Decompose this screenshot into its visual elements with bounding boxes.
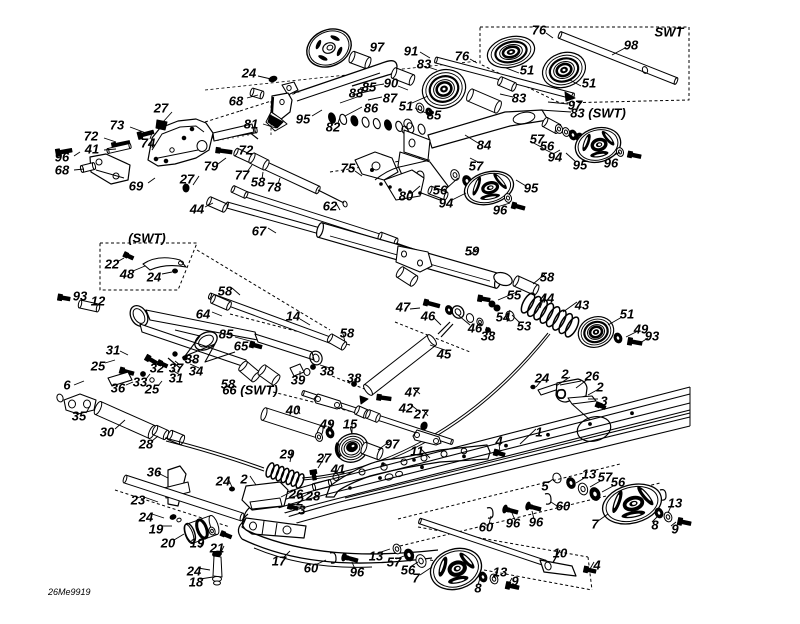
svg-text:83 (SWT): 83 (SWT) [570, 106, 626, 121]
svg-text:62: 62 [323, 199, 338, 214]
svg-text:45: 45 [436, 347, 452, 362]
svg-text:58: 58 [540, 270, 555, 285]
svg-text:8: 8 [474, 581, 482, 596]
svg-text:85: 85 [427, 108, 442, 123]
svg-text:29: 29 [279, 447, 295, 462]
svg-text:35: 35 [72, 409, 87, 424]
svg-text:51: 51 [582, 76, 596, 91]
svg-text:76: 76 [455, 49, 470, 64]
svg-text:83: 83 [417, 57, 432, 72]
svg-text:87: 87 [383, 91, 398, 106]
svg-text:25: 25 [144, 382, 160, 397]
svg-text:24: 24 [215, 474, 231, 489]
svg-text:1: 1 [535, 425, 542, 440]
svg-text:78: 78 [267, 180, 282, 195]
svg-text:80: 80 [399, 189, 414, 204]
svg-text:54: 54 [496, 310, 511, 325]
svg-text:27: 27 [413, 407, 429, 422]
svg-text:51: 51 [520, 63, 534, 78]
svg-text:95: 95 [573, 158, 588, 173]
svg-text:27: 27 [153, 101, 169, 116]
svg-text:36: 36 [147, 465, 162, 480]
svg-text:77: 77 [235, 168, 250, 183]
svg-text:72: 72 [239, 143, 254, 158]
svg-text:14: 14 [286, 309, 301, 324]
svg-text:46: 46 [420, 309, 436, 324]
svg-text:96: 96 [506, 516, 521, 531]
svg-text:48: 48 [119, 267, 135, 282]
svg-text:93: 93 [645, 329, 660, 344]
svg-text:7: 7 [591, 517, 599, 532]
svg-text:47: 47 [395, 300, 411, 315]
svg-text:67: 67 [252, 224, 267, 239]
svg-text:51: 51 [620, 307, 634, 322]
svg-text:96: 96 [350, 565, 365, 580]
svg-text:93: 93 [73, 289, 88, 304]
svg-text:17: 17 [272, 554, 287, 569]
svg-text:49: 49 [319, 417, 335, 432]
svg-text:SWT: SWT [655, 25, 685, 40]
svg-text:95: 95 [296, 112, 311, 127]
svg-text:39: 39 [291, 373, 306, 388]
svg-text:11: 11 [410, 444, 424, 459]
svg-text:44: 44 [539, 291, 555, 306]
svg-text:85: 85 [219, 327, 234, 342]
svg-text:65: 65 [234, 339, 249, 354]
svg-text:43: 43 [574, 298, 590, 313]
svg-text:41: 41 [84, 142, 99, 157]
svg-text:(SWT): (SWT) [128, 231, 166, 246]
svg-text:98: 98 [624, 38, 639, 53]
svg-text:57: 57 [387, 555, 402, 570]
svg-text:23: 23 [130, 493, 146, 508]
svg-text:30: 30 [100, 425, 115, 440]
svg-text:57: 57 [469, 159, 484, 174]
svg-text:41: 41 [330, 462, 345, 477]
svg-text:38: 38 [347, 371, 362, 386]
svg-text:18: 18 [189, 575, 204, 590]
svg-text:59: 59 [465, 244, 480, 259]
svg-text:60: 60 [556, 499, 571, 514]
svg-text:58: 58 [251, 175, 266, 190]
svg-text:58: 58 [340, 326, 355, 341]
svg-text:2: 2 [560, 367, 569, 382]
svg-text:74: 74 [141, 136, 156, 151]
svg-text:10: 10 [553, 546, 568, 561]
svg-text:31: 31 [169, 371, 183, 386]
svg-text:31: 31 [106, 343, 120, 358]
svg-text:75: 75 [341, 161, 356, 176]
svg-text:69: 69 [129, 179, 144, 194]
svg-text:24: 24 [241, 66, 257, 81]
svg-text:15: 15 [343, 417, 358, 432]
svg-text:76: 76 [532, 23, 547, 38]
svg-text:73: 73 [110, 118, 125, 133]
svg-text:96: 96 [604, 156, 619, 171]
svg-text:94: 94 [439, 196, 454, 211]
svg-text:2: 2 [595, 380, 604, 395]
svg-text:60: 60 [304, 561, 319, 576]
svg-text:3: 3 [298, 503, 306, 518]
svg-text:19: 19 [190, 536, 205, 551]
svg-text:82: 82 [326, 120, 341, 135]
svg-text:96: 96 [529, 515, 544, 530]
svg-text:96: 96 [493, 203, 508, 218]
svg-text:44: 44 [189, 202, 205, 217]
svg-text:24: 24 [146, 270, 162, 285]
svg-text:4: 4 [592, 558, 601, 573]
svg-text:42: 42 [398, 401, 414, 416]
svg-text:6: 6 [63, 378, 71, 393]
svg-text:26Me9919: 26Me9919 [47, 587, 91, 597]
svg-text:47: 47 [404, 385, 420, 400]
svg-text:86: 86 [364, 101, 379, 116]
svg-text:3: 3 [600, 394, 608, 409]
svg-text:79: 79 [204, 159, 219, 174]
svg-text:9: 9 [511, 574, 519, 589]
svg-text:13: 13 [582, 467, 597, 482]
svg-text:8: 8 [651, 518, 659, 533]
svg-text:24: 24 [534, 371, 550, 386]
svg-text:21: 21 [209, 541, 224, 556]
svg-text:28: 28 [305, 489, 321, 504]
svg-text:32: 32 [150, 361, 165, 376]
svg-text:53: 53 [517, 319, 532, 334]
svg-text:84: 84 [477, 138, 492, 153]
svg-text:56: 56 [611, 475, 626, 490]
svg-text:81: 81 [244, 117, 258, 132]
svg-text:38: 38 [320, 364, 335, 379]
svg-text:97: 97 [385, 437, 400, 452]
svg-text:85: 85 [362, 80, 377, 95]
svg-text:94: 94 [548, 150, 563, 165]
svg-text:13: 13 [369, 549, 384, 564]
svg-text:68: 68 [55, 163, 70, 178]
svg-text:66 (SWT): 66 (SWT) [222, 383, 278, 398]
svg-text:38: 38 [481, 329, 496, 344]
svg-text:27: 27 [316, 451, 332, 466]
svg-text:13: 13 [668, 496, 683, 511]
svg-text:4: 4 [494, 434, 503, 449]
svg-text:60: 60 [479, 520, 494, 535]
svg-text:83: 83 [512, 91, 527, 106]
svg-text:97: 97 [370, 40, 385, 55]
svg-text:25: 25 [90, 359, 106, 374]
svg-text:55: 55 [507, 288, 522, 303]
svg-text:68: 68 [229, 94, 244, 109]
svg-text:5: 5 [541, 479, 549, 494]
svg-text:36: 36 [111, 381, 126, 396]
svg-text:13: 13 [493, 565, 508, 580]
svg-text:19: 19 [149, 522, 164, 537]
svg-text:20: 20 [160, 536, 176, 551]
svg-text:64: 64 [196, 307, 211, 322]
svg-text:12: 12 [91, 294, 106, 309]
svg-text:27: 27 [179, 172, 195, 187]
svg-text:40: 40 [285, 403, 301, 418]
svg-text:58: 58 [218, 284, 233, 299]
svg-text:90: 90 [384, 76, 399, 91]
svg-text:9: 9 [671, 522, 679, 537]
svg-text:7: 7 [412, 571, 420, 586]
svg-text:51: 51 [399, 99, 413, 114]
svg-text:38: 38 [185, 352, 200, 367]
svg-text:2: 2 [239, 472, 248, 487]
svg-text:95: 95 [524, 181, 539, 196]
svg-text:22: 22 [104, 257, 120, 272]
svg-text:28: 28 [138, 437, 154, 452]
